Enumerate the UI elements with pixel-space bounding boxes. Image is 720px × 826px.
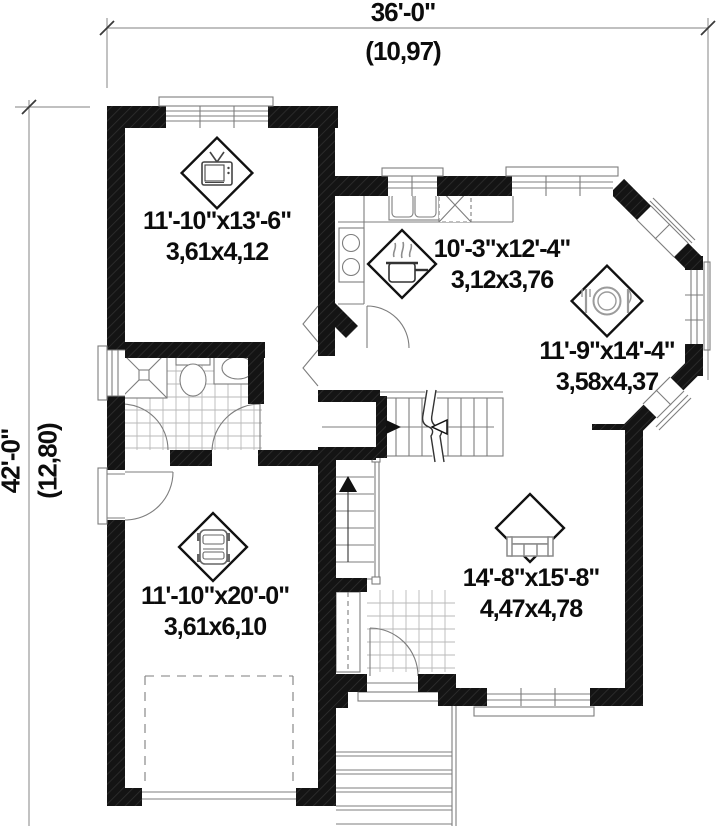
entry-tile-grid xyxy=(367,590,455,672)
top-dimension-meters: (10,97) xyxy=(365,36,440,67)
floor-plan-drawing xyxy=(0,0,720,826)
family-room-size-imperial: 11'-10"x13'-6" xyxy=(143,206,291,237)
wall-bathroom-bottom-1 xyxy=(170,450,212,466)
family-room-label: 11'-10"x13'-6" 3,61x4,12 xyxy=(143,206,291,268)
wall-stair-divider xyxy=(376,396,387,458)
kitchen-nook-window xyxy=(506,167,618,196)
dining-room-diamond xyxy=(572,266,643,337)
garage-size-imperial: 11'-10"x20'-0" xyxy=(141,581,289,612)
wall-garage-right xyxy=(318,450,336,806)
dining-room-label: 11'-9"x14'-4" 3,58x4,37 xyxy=(539,336,674,398)
living-room-diamond xyxy=(496,494,564,562)
toilet xyxy=(176,353,210,396)
garage-side-door-opening xyxy=(98,468,125,524)
garage-size-metric: 3,61x6,10 xyxy=(141,612,289,643)
wall-garage-bottom-left xyxy=(107,788,142,806)
wall-closet-stub xyxy=(318,300,332,354)
kitchen-diamond xyxy=(368,230,436,298)
bathroom-door-swing-left xyxy=(122,404,168,450)
wall-stair-top xyxy=(318,390,380,402)
kitchen-size-imperial: 10'-3"x12'-4" xyxy=(434,234,571,265)
family-room-diamond xyxy=(182,138,253,209)
hall-door-swing xyxy=(367,306,409,348)
left-dimension-meters: (12,80) xyxy=(33,423,64,498)
entry-closet xyxy=(336,592,360,672)
kitchen-label: 10'-3"x12'-4" 3,12x3,76 xyxy=(434,234,571,296)
garage-side-door-swing xyxy=(125,472,173,520)
stairs-lower-flight xyxy=(336,455,380,584)
porch-steps xyxy=(336,689,457,826)
wall-kitchen-top-1 xyxy=(330,176,388,196)
living-room-window xyxy=(474,688,594,716)
dining-room-size-imperial: 11'-9"x14'-4" xyxy=(539,336,674,367)
floor-plan-page: 36'-0" (10,97) 42'-0" (12,80) 11'-10"x13… xyxy=(0,0,720,826)
garage-door xyxy=(142,676,296,799)
sofa-icon xyxy=(507,537,553,556)
dining-right-window xyxy=(685,262,710,350)
bathroom-door-swing-right xyxy=(212,404,260,450)
living-room-size-metric: 4,47x4,78 xyxy=(463,594,600,625)
wall-bathroom-top xyxy=(125,342,265,358)
wall-living-right xyxy=(625,428,643,706)
garage-label: 11'-10"x20'-0" 3,61x6,10 xyxy=(141,581,289,643)
living-room-size-imperial: 14'-8"x15'-8" xyxy=(463,563,600,594)
wall-stair-mid xyxy=(318,447,376,460)
bathroom-left-window xyxy=(98,346,125,400)
car-icon xyxy=(197,530,230,564)
shower-stall xyxy=(121,352,167,398)
wall-entry-corner xyxy=(438,674,456,706)
wall-entry-top xyxy=(318,578,367,592)
arrow-up-right xyxy=(386,420,401,434)
dimension-tick-marks xyxy=(22,21,715,114)
left-dimension-feet: 42'-0" xyxy=(0,429,27,494)
garage-diamond xyxy=(179,513,247,581)
wall-kitchen-top-2 xyxy=(437,176,513,196)
wall-left-upper xyxy=(107,106,125,470)
family-room-size-metric: 3,61x4,12 xyxy=(143,237,291,268)
wall-angled-stub xyxy=(332,300,358,338)
wall-bathroom-right xyxy=(248,342,264,404)
family-room-window xyxy=(159,97,273,128)
wall-living-bottom-2 xyxy=(590,688,643,706)
dining-room-size-metric: 3,58x4,37 xyxy=(539,367,674,398)
wall-left-lower xyxy=(107,520,125,806)
wall-top-left xyxy=(107,106,166,128)
wall-bathroom-bottom-2 xyxy=(258,450,320,466)
top-dimension-feet: 36'-0" xyxy=(371,0,436,28)
living-room-label: 14'-8"x15'-8" 4,47x4,78 xyxy=(463,563,600,625)
arrow-up-lower-flight xyxy=(339,476,357,492)
kitchen-sink-window xyxy=(382,168,443,196)
kitchen-size-metric: 3,12x3,76 xyxy=(434,265,571,296)
closet-bifold-doors xyxy=(303,306,318,386)
stove xyxy=(339,228,364,282)
